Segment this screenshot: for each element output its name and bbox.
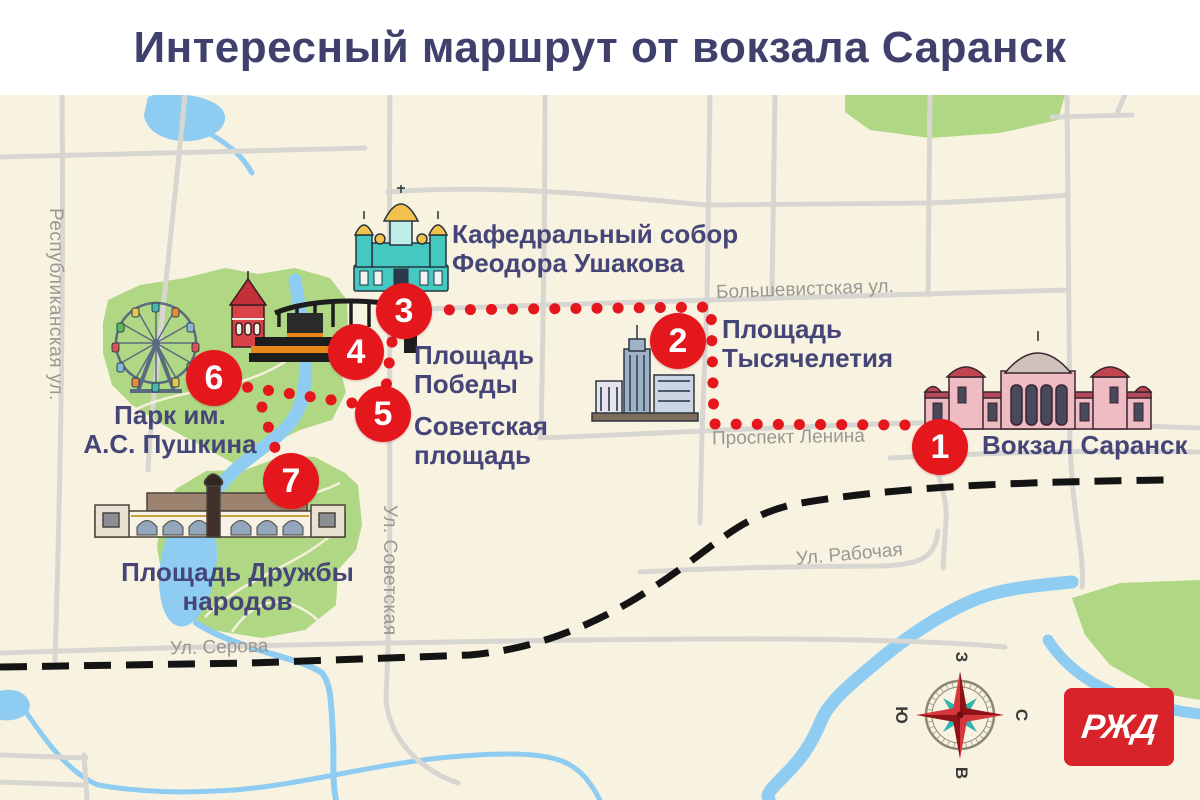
street-label-serova: Ул. Серова	[170, 636, 269, 661]
stop-number-2: 2	[669, 324, 688, 358]
stop-label-6: Парк им. А.С. Пушкина	[80, 401, 260, 459]
stop-number-4: 4	[347, 335, 366, 369]
stop-label-5: Советская площадь	[414, 412, 548, 470]
stop-number-1: 1	[931, 430, 950, 464]
street-label-sovetskaya: Ул. Советская	[378, 505, 400, 636]
street-label-prospekt-lenina: Проспект Ленина	[712, 426, 865, 451]
title-band: Интересный маршрут от вокзала Саранск	[0, 0, 1200, 95]
stop-marker-1[interactable]: 1	[912, 419, 968, 475]
stop-label-4: Площадь Победы	[414, 341, 534, 399]
stop-number-7: 7	[282, 464, 301, 498]
stop-number-6: 6	[205, 361, 224, 395]
stop-marker-5[interactable]: 5	[355, 386, 411, 442]
compass-letter-south: Ю	[890, 704, 912, 726]
infographic-title: Интересный маршрут от вокзала Саранск	[134, 23, 1067, 73]
street-label-respublikanskaya: Республиканская ул.	[44, 208, 66, 401]
stop-number-5: 5	[374, 397, 393, 431]
stop-marker-7[interactable]: 7	[263, 453, 319, 509]
stop-marker-4[interactable]: 4	[328, 324, 384, 380]
stop-label-3: Кафедральный собор Феодора Ушакова	[452, 220, 738, 278]
compass-letter-east: В	[950, 762, 972, 784]
stop-label-1: Вокзал Саранск	[982, 431, 1188, 460]
stop-label-7: Площадь Дружбы народов	[110, 558, 365, 616]
compass-letter-west: З	[950, 646, 972, 668]
infographic: Интересный маршрут от вокзала Саранск	[0, 0, 1200, 800]
stop-marker-2[interactable]: 2	[650, 313, 706, 369]
stop-marker-3[interactable]: 3	[376, 283, 432, 339]
route-map: Республиканская ул. Ул. Советская Больше…	[0, 95, 1200, 800]
rzd-logo-text: РЖД	[1079, 708, 1159, 747]
stop-number-3: 3	[395, 294, 414, 328]
stop-marker-6[interactable]: 6	[186, 350, 242, 406]
rzd-logo: РЖД	[1064, 688, 1174, 766]
compass-letter-north: С	[1010, 704, 1032, 726]
stop-label-2: Площадь Тысячелетия	[722, 315, 893, 373]
